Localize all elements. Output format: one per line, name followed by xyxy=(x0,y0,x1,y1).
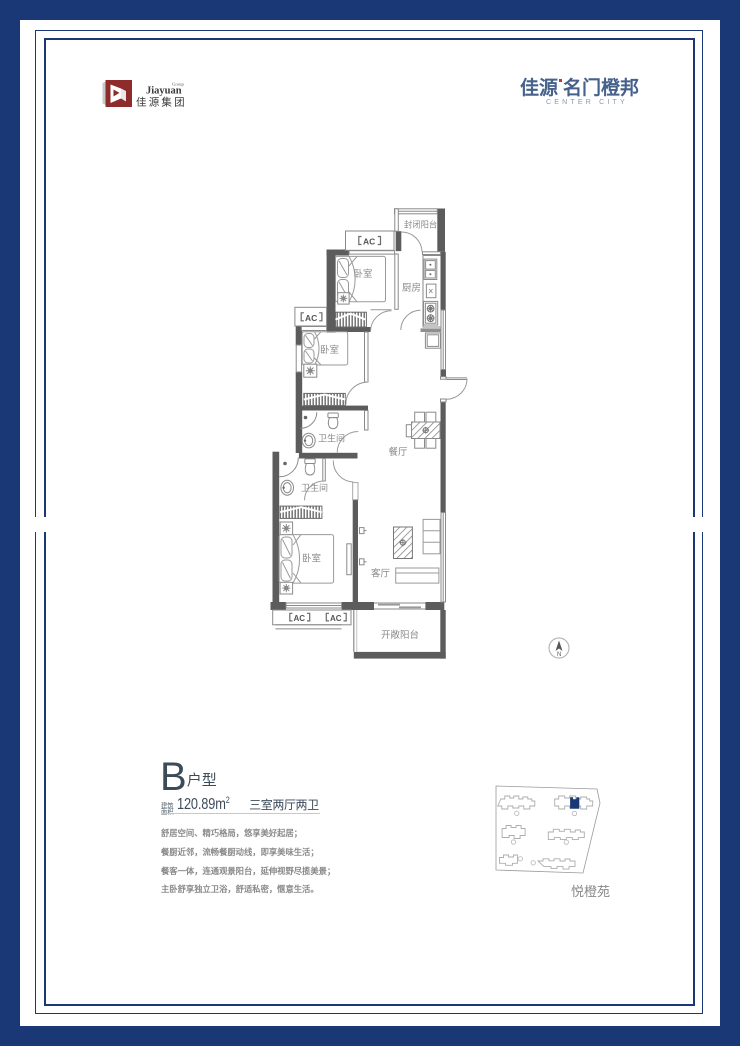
svg-text:开敞阳台: 开敞阳台 xyxy=(381,629,419,641)
svg-text:卧室: 卧室 xyxy=(320,344,339,356)
svg-text:Jiayuan: Jiayuan xyxy=(146,86,182,97)
svg-text:AC: AC xyxy=(305,313,317,323)
svg-text:封闭阳台: 封闭阳台 xyxy=(404,220,437,230)
svg-text:AC: AC xyxy=(363,237,375,247)
svg-text:卫生间: 卫生间 xyxy=(301,482,328,493)
svg-text:AC: AC xyxy=(330,614,342,623)
svg-text:卫生间: 卫生间 xyxy=(318,433,345,444)
svg-text:厨房: 厨房 xyxy=(402,282,421,294)
svg-text:餐厅: 餐厅 xyxy=(389,446,409,458)
svg-text:N: N xyxy=(557,652,561,658)
svg-text:卧室: 卧室 xyxy=(302,553,321,565)
svg-text:卧室: 卧室 xyxy=(354,268,373,280)
svg-text:AC: AC xyxy=(294,614,306,623)
svg-text:佳源集团: 佳源集团 xyxy=(136,96,187,109)
svg-text:客厅: 客厅 xyxy=(371,568,391,580)
